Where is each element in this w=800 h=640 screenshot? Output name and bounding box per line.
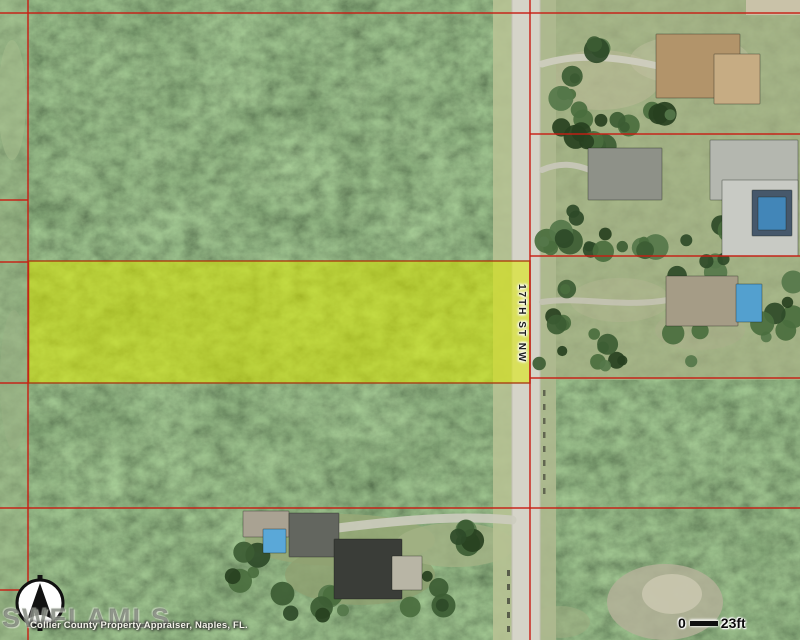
gray-roof-house [588, 148, 662, 200]
highlighted-parcel [29, 261, 531, 383]
garage [714, 54, 760, 104]
left-pasture-strip [0, 0, 28, 640]
gray-house [289, 513, 339, 557]
aerial-parcel-map: 17TH ST NW SWFLAMLS Collier County Prope… [0, 0, 800, 640]
tan-house [666, 276, 738, 326]
pool [736, 284, 762, 322]
pool [758, 197, 786, 230]
driveway-pad [392, 556, 422, 590]
aerial-imagery [0, 0, 800, 640]
pool [263, 529, 286, 553]
